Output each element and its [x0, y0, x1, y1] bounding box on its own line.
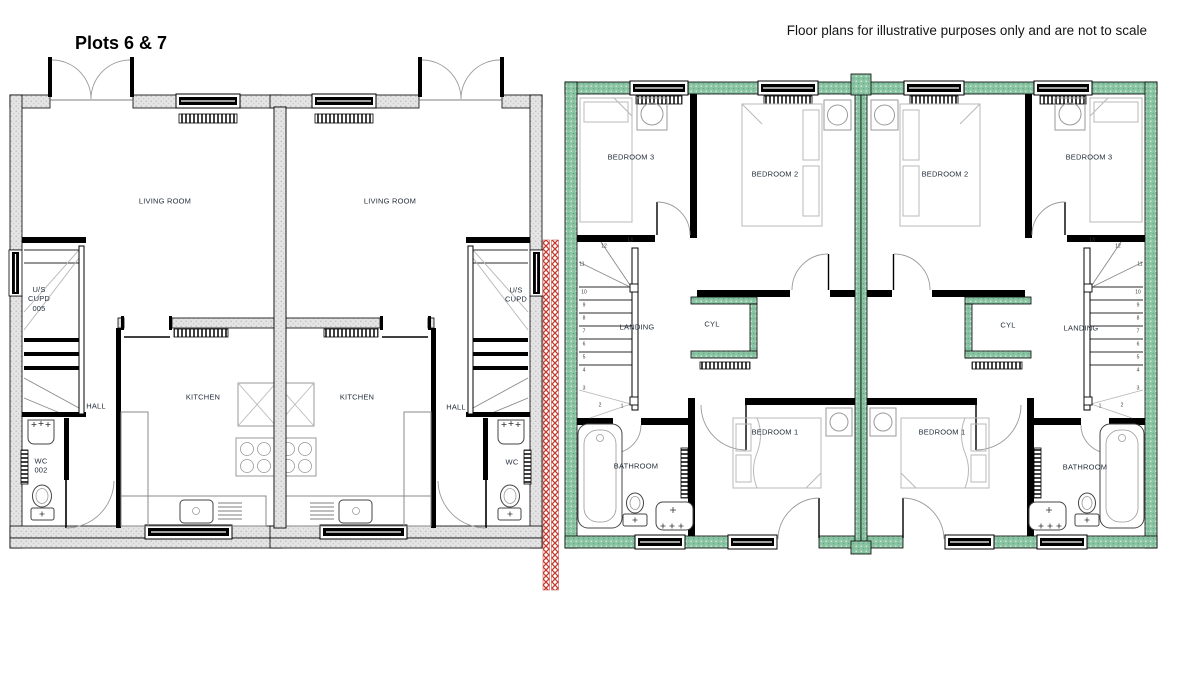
- gf-side-window: [9, 250, 22, 296]
- stair-step-number: 2: [599, 404, 602, 409]
- room-label-wc-right: WC: [506, 457, 519, 466]
- stair-step-number: 3: [1137, 387, 1140, 392]
- room-label-wc-left: WC 002: [34, 457, 47, 476]
- room-label-bedroom1-left: BEDROOM 1: [752, 427, 799, 436]
- room-label-bathroom-left: BATHROOM: [614, 461, 658, 470]
- room-label-bedroom2-right: BEDROOM 2: [922, 169, 969, 178]
- room-label-bedroom2-left: BEDROOM 2: [752, 169, 799, 178]
- stair-step-number: 7: [583, 330, 586, 335]
- stair-step-number: 9: [1137, 304, 1140, 309]
- room-label-kitchen-left: KITCHEN: [186, 392, 220, 401]
- gf-party-wall: [274, 107, 286, 528]
- wash-basin: [656, 502, 693, 530]
- plan-title: Plots 6 & 7: [75, 33, 167, 54]
- stair-step-number: 3: [583, 387, 586, 392]
- room-label-hall-left: HALL: [86, 401, 106, 410]
- room-label-hall-right: HALL: [446, 402, 466, 411]
- radiator: [21, 450, 28, 484]
- stair-step-number: 11: [1137, 263, 1142, 268]
- room-label-landing-left: LANDING: [620, 322, 655, 331]
- stair-step-number: 11: [579, 263, 584, 268]
- gf-front-window: [176, 94, 240, 123]
- stair-step-number: 4: [1137, 369, 1140, 374]
- room-label-bedroom1-right: BEDROOM 1: [919, 427, 966, 436]
- bathtub: [578, 424, 622, 528]
- room-label-cupboard-left: U/S CUPD 005: [28, 285, 50, 313]
- appliance-space: [238, 383, 276, 426]
- stair-step-number: 1: [621, 405, 624, 410]
- floorplan-page: Plots 6 & 7 Floor plans for illustrative…: [0, 0, 1181, 692]
- stair-handrail: [79, 246, 84, 414]
- room-label-landing-right: LANDING: [1064, 323, 1099, 332]
- disclaimer-note: Floor plans for illustrative purposes on…: [787, 23, 1147, 38]
- room-label-bathroom-right: BATHROOM: [1063, 462, 1107, 471]
- stair-step-number: 1: [1099, 405, 1102, 410]
- room-label-living-room-right: LIVING ROOM: [364, 196, 416, 205]
- radiator: [174, 329, 228, 337]
- stair-step-number: 13: [1089, 239, 1095, 244]
- stair-step-number: 2: [1121, 404, 1124, 409]
- stair-step-number: 4: [583, 369, 586, 374]
- stair-step-number: 9: [583, 304, 586, 309]
- room-label-cupboard-right: U/S CUPD: [505, 286, 527, 305]
- kitchen-sink: [180, 500, 213, 523]
- gf-kitchen-wall: [116, 328, 121, 528]
- ff-party-wall-top: [851, 74, 871, 95]
- stair-step-number: 6: [1137, 343, 1140, 348]
- stair-step-number: 6: [583, 343, 586, 348]
- towel-radiator: [681, 448, 688, 498]
- stair-step-number: 8: [583, 317, 586, 322]
- stair-step-number: 10: [581, 291, 587, 296]
- room-label-living-room-left: LIVING ROOM: [139, 196, 191, 205]
- radiator: [179, 114, 237, 123]
- stair-step-number: 13: [627, 239, 633, 244]
- stair-step-number: 5: [583, 356, 586, 361]
- room-label-kitchen-right: KITCHEN: [340, 392, 374, 401]
- radiator: [700, 362, 750, 369]
- stair-step-number: 8: [1137, 317, 1140, 322]
- room-label-bedroom3-right: BEDROOM 3: [1066, 152, 1113, 161]
- room-label-cyl-left: CYL: [704, 319, 719, 328]
- ff-party-wall-bottom: [851, 541, 871, 554]
- gf-rear-window: [145, 525, 232, 539]
- stair-step-number: 12: [601, 245, 607, 250]
- floorplan-drawing: [0, 0, 1181, 692]
- stair-step-number: 10: [1135, 291, 1141, 296]
- stair-step-number: 5: [1137, 356, 1140, 361]
- stair-step-number: 12: [1115, 245, 1121, 250]
- room-label-cyl-right: CYL: [1000, 320, 1015, 329]
- stair-step-number: 7: [1137, 330, 1140, 335]
- room-label-bedroom3-left: BEDROOM 3: [608, 152, 655, 161]
- radiator: [764, 96, 812, 104]
- radiator: [636, 96, 682, 104]
